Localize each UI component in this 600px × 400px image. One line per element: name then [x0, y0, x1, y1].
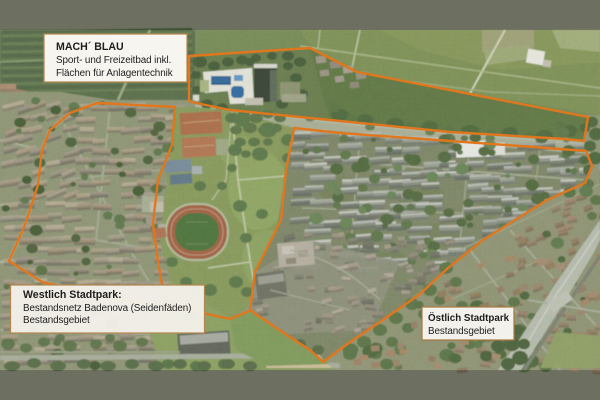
- svg-text:Sport- und Freizeitbad inkl.: Sport- und Freizeitbad inkl.: [56, 55, 171, 66]
- svg-text:Bestandsgebiet: Bestandsgebiet: [23, 315, 90, 326]
- svg-text:Bestandsgebiet: Bestandsgebiet: [428, 326, 495, 337]
- svg-text:Westlich Stadtpark:: Westlich Stadtpark:: [23, 289, 122, 301]
- svg-text:Östlich Stadtpark: Östlich Stadtpark: [428, 313, 510, 324]
- svg-text:Flächen für Anlagentechnik: Flächen für Anlagentechnik: [56, 68, 173, 79]
- svg-text:MACH´ BLAU: MACH´ BLAU: [56, 41, 124, 53]
- svg-text:Bestandsnetz Badenova (Seidenf: Bestandsnetz Badenova (Seidenfäden): [23, 303, 191, 314]
